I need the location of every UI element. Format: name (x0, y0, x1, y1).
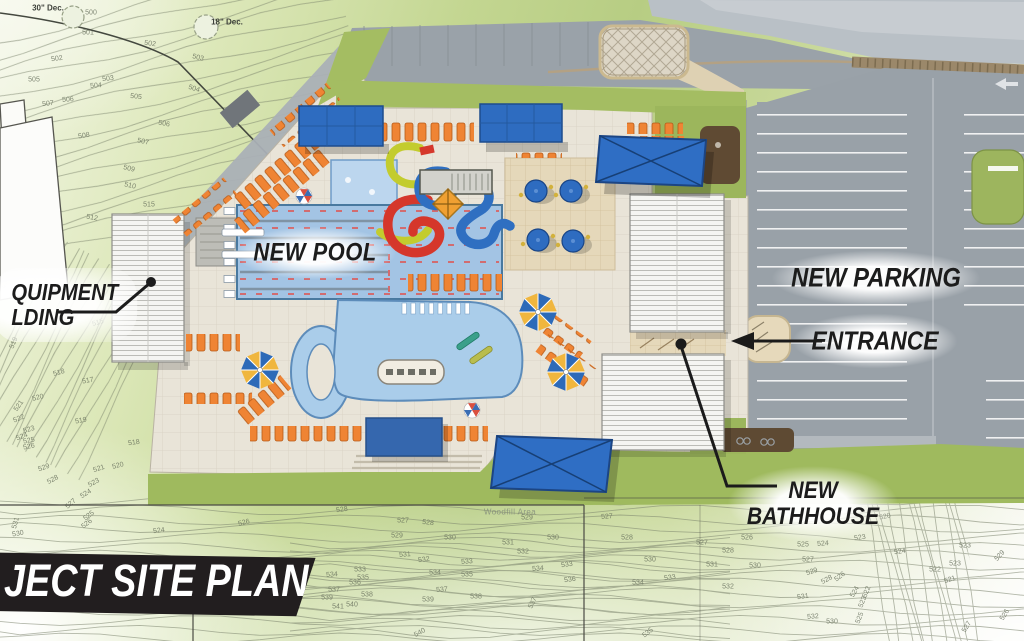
entrance-pad (744, 316, 790, 362)
beach-ball (296, 188, 312, 204)
pool-umbrella (241, 351, 279, 389)
beach-ball (464, 402, 480, 418)
area-note: Woodfill Area (484, 508, 536, 517)
label-equipment-line2: LDING (11, 305, 74, 330)
bathhouse-south-wing (602, 354, 724, 450)
site-plan-canvas: 5005015025025035035045045055055065065075… (0, 0, 1024, 641)
tree-note: 30" Dec. (32, 4, 64, 13)
plan-title-text: JECT SITE PLAN (4, 555, 309, 607)
label-new-bathhouse-line2: BATHHOUSE (747, 504, 879, 530)
landscape-island (972, 150, 1024, 224)
pool-umbrella (547, 353, 585, 391)
parking-stalls (986, 366, 1024, 440)
tree-symbol (62, 6, 84, 28)
label-new-bathhouse-line1: NEW (788, 478, 837, 504)
bike-rack-bed (720, 428, 794, 452)
label-entrance-text: ENTRANCE (811, 326, 938, 357)
label-entrance: ENTRANCE (792, 314, 958, 369)
label-new-pool-text: NEW POOL (253, 239, 376, 268)
river-island (307, 344, 335, 400)
flat-canopy (366, 418, 442, 456)
pool-umbrella (519, 293, 557, 331)
paved-entry-apron (600, 26, 688, 78)
label-equipment-line1: QUIPMENT (11, 280, 118, 305)
slide-platform (420, 170, 492, 194)
label-new-parking: NEW PARKING (772, 251, 981, 306)
label-new-parking-text: NEW PARKING (791, 263, 961, 294)
label-equipment-building: QUIPMENT LDING (0, 268, 138, 342)
leisure-pool (334, 300, 523, 401)
label-new-pool: NEW POOL (234, 227, 396, 280)
tree-note: 18" Dec. (211, 18, 243, 27)
label-new-bathhouse: NEW BATHHOUSE (728, 466, 899, 542)
